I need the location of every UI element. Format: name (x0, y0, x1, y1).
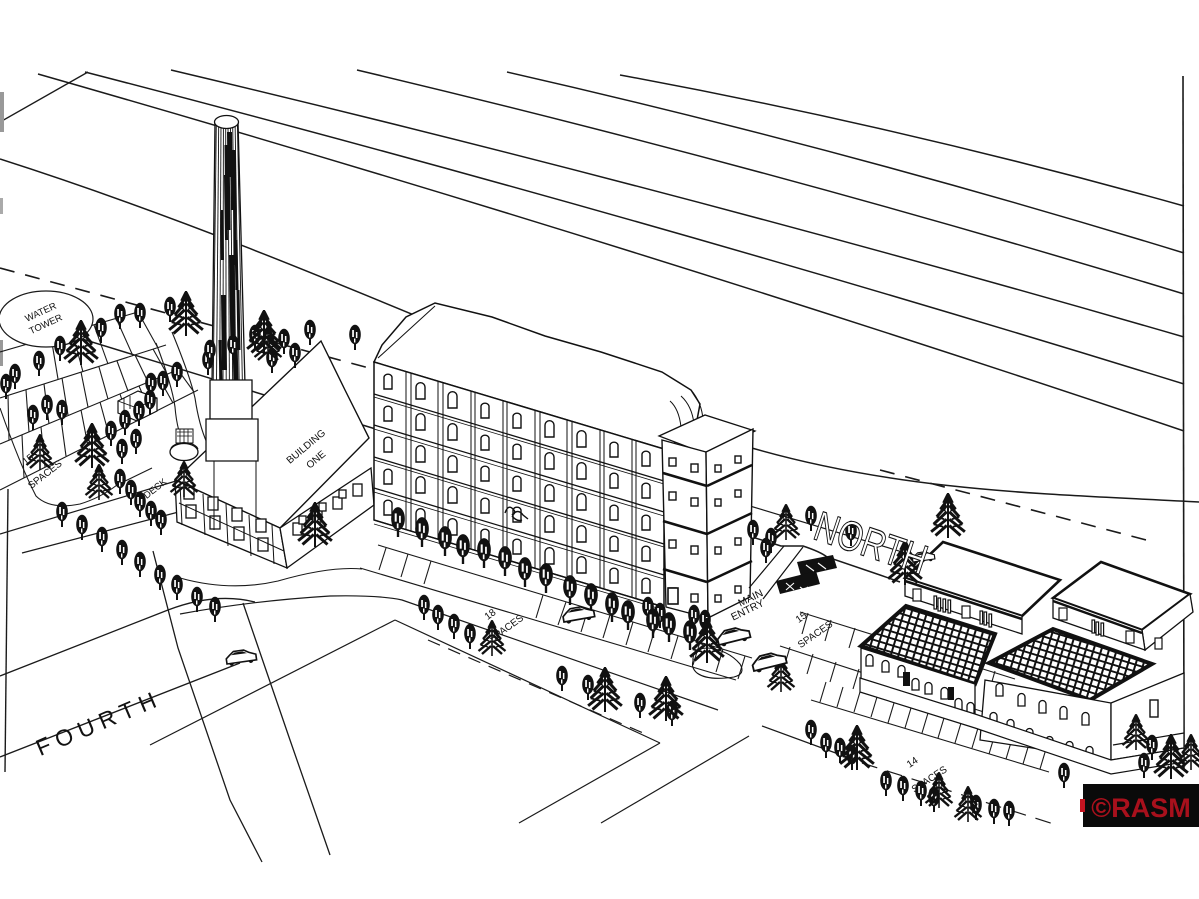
svg-text:©RASM: ©RASM (1091, 793, 1190, 823)
